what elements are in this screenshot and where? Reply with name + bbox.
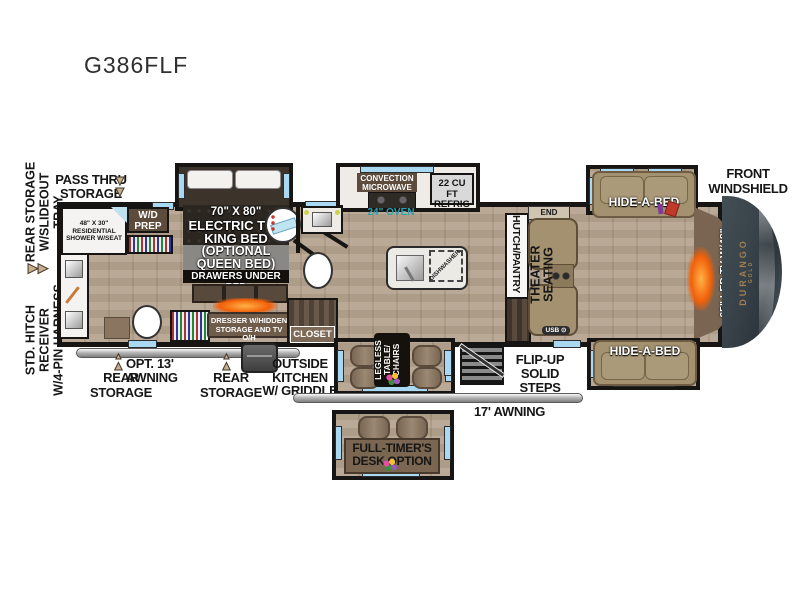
shower: 48" X 30" RESIDENTIAL SHOWER W/SEAT [61,207,127,255]
hutch-pantry-label: HUTCH/PANTRY [508,209,522,299]
window-strip [178,173,185,199]
awning-arm-icon: ▲ [112,361,125,370]
vanity-double-sink [59,253,89,339]
label-line: REAR STORAGE [24,160,38,265]
label-line: FRONT [700,167,796,182]
window-strip [337,350,344,382]
arrow-down-icon: ▼ [113,186,127,197]
label-rear-storage-1: REAR STORAGE [86,371,156,400]
brand-durango: DURANGO [738,227,748,317]
label-line: STORAGE AND TV O/H [209,326,289,343]
label-line: RESIDENTIAL [63,228,125,236]
label-line: STORAGE [86,386,156,401]
label-line: SHOWER W/SEAT [63,235,125,243]
label-rear-storage-2: REAR STORAGE [196,371,266,400]
desk-chair [396,416,428,440]
window-strip [283,173,290,199]
closet-label: CLOSET [290,326,335,343]
label-line: REAR [196,371,266,386]
pillow [235,170,281,189]
label-line: FLIP-UP [500,353,580,367]
arrow-right-icon: ▶▶ [28,262,48,273]
flowers-icon [384,372,402,386]
shower-label: 48" X 30" RESIDENTIAL SHOWER W/SEAT [63,220,125,243]
dinette-chair [412,367,442,389]
sofa-bottom: HIDE-A-BED [593,340,697,386]
bath-cabinet [104,317,130,339]
sink [65,311,83,329]
window-strip [444,350,452,376]
hanging-clothes [127,235,173,254]
flowers-icon [381,458,399,472]
awning-17-tube [293,393,583,403]
dinette-chair [412,345,442,367]
window-strip [335,426,342,460]
label-line: KITCHEN [258,371,342,385]
toilet-mid [303,252,333,289]
usb-port-icon: ⊙ [561,327,566,334]
towel [65,286,80,304]
label-rear-storage-tray: REAR STORAGE W/SLIDEOUT TRAY [24,160,52,265]
desk-chair [358,416,390,440]
floorplan-diagram: G386FLF REAR STORAGE W/SLIDEOUT TRAY ▶▶ … [0,0,800,600]
dresser-box: DRESSER W/HIDDEN STORAGE AND TV O/H [207,312,291,338]
kitchen-slideout: CONVECTION MICROWAVE 22 CU FT REFRIG [336,163,480,212]
window-strip [128,340,157,348]
light-icon [335,210,340,215]
dishwasher-box: DISHWASHER, [429,250,463,282]
sink [312,212,332,227]
hide-a-bed-label: HIDE-A-BED [594,195,694,209]
entry-steps [460,343,504,385]
dishwasher-label: DISHWASHER, [429,250,462,283]
label-hitch-receiver: STD. HITCH RECEIVER W/4-PIN HARNESS [24,273,52,408]
label-line: OUTSIDE [258,357,342,371]
steps-rail [460,344,504,376]
window-strip [360,166,434,173]
label-line: REFRIG [432,200,472,211]
label-line: W/D [129,211,167,222]
window-strip [553,340,581,348]
pillow [187,170,233,189]
label-front-windshield: FRONT WINDSHIELD [700,167,796,196]
kitchen-island: DISHWASHER, [386,246,468,290]
theater-seating-label: THEATER SEATING [530,220,557,330]
label-line: REAR [86,371,156,386]
microwave-box: CONVECTION MICROWAVE [357,173,417,192]
label-line: 22 CU FT [432,179,472,200]
label-line: SEATING [543,220,556,330]
label-line: 48" X 30" [63,220,125,228]
book-icon [664,200,680,217]
sofa-top: HIDE-A-BED [592,171,696,218]
sink [65,260,83,278]
label-line: MICROWAVE [357,184,417,193]
usb-badge-bottom: USB ⊙ [542,326,570,335]
wd-prep-cabinet: W/D PREP [127,207,169,233]
bed-slideout [175,163,293,211]
label-17-awning: 17' AWNING [474,405,554,419]
usb-label: USB [546,327,560,334]
label-outside-kitchen: OUTSIDE KITCHEN W/ GRIDDLE [258,357,342,398]
oven-label: 24" OVEN [364,207,418,218]
label-line: WINDSHIELD [700,182,796,197]
label-line: STD. HITCH RECEIVER [24,273,52,408]
light-icon [304,210,309,215]
window-strip [444,426,451,460]
tilt-dots-icon [271,215,275,231]
label-line: PREP [129,222,167,233]
brand-gold: GOLD [748,227,754,317]
page-title: G386FLF [84,52,188,79]
label-flip-up-steps: FLIP-UP SOLID STEPS [500,353,580,395]
bath-vanity [301,206,343,234]
label-line: SOLID STEPS [500,367,580,395]
hide-a-bed-label: HIDE-A-BED [595,344,695,358]
label-line: STORAGE [196,386,266,401]
toilet-rear [132,305,162,339]
refrigerator-box: 22 CU FT REFRIG [430,173,474,205]
optional-label: (OPTIONAL QUEEN BED) [183,245,289,271]
fireplace-glow [687,247,715,311]
wardrobe-clothes [170,310,210,342]
